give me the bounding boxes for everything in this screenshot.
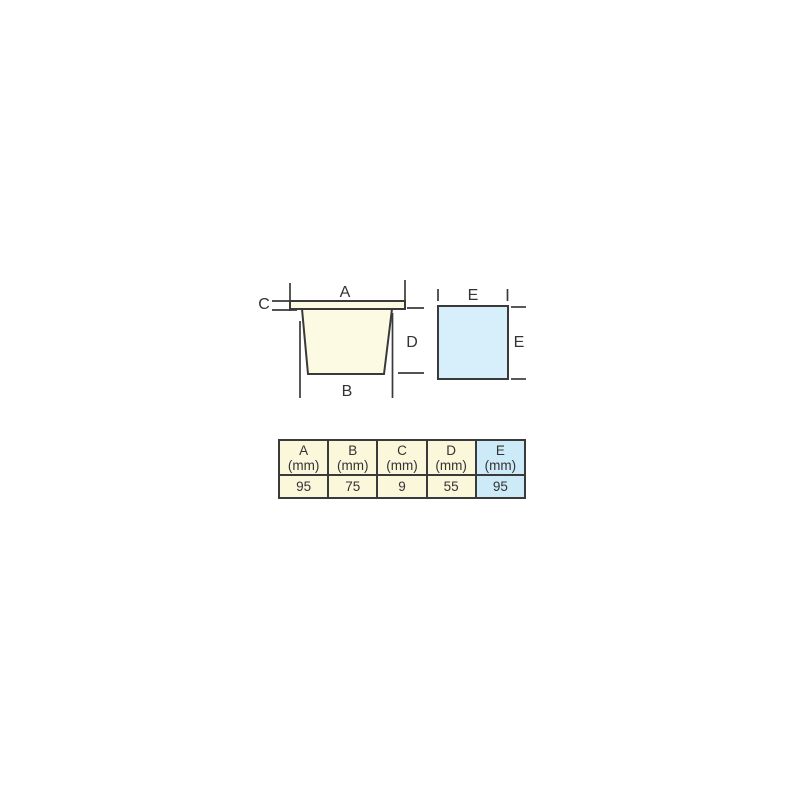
value-c: 9 xyxy=(377,475,426,498)
square-top-view: E E xyxy=(438,287,526,379)
col-header-d: D (mm) xyxy=(427,440,476,475)
col-header-e-name: E xyxy=(477,443,524,458)
value-d: 55 xyxy=(427,475,476,498)
col-header-a: A (mm) xyxy=(279,440,328,475)
col-header-a-unit: (mm) xyxy=(280,458,327,473)
dimension-drawing: A C D B E E xyxy=(0,0,800,800)
dim-label-a: A xyxy=(340,284,351,301)
dim-label-c: C xyxy=(258,296,270,313)
dim-label-d: D xyxy=(406,334,418,351)
col-header-d-name: D xyxy=(428,443,475,458)
dimension-table-body: 95 75 9 55 95 xyxy=(279,475,525,498)
dim-label-e-top: E xyxy=(468,287,479,304)
value-b: 75 xyxy=(328,475,377,498)
dim-label-e-side: E xyxy=(514,334,525,351)
col-header-e-unit: (mm) xyxy=(477,458,524,473)
table-value-row: 95 75 9 55 95 xyxy=(279,475,525,498)
col-header-c-name: C xyxy=(378,443,425,458)
pot-flange-shape xyxy=(290,301,405,309)
dim-label-b: B xyxy=(342,383,353,400)
pot-body-shape xyxy=(302,309,392,374)
square-shape xyxy=(438,306,508,379)
dimension-table-header: A (mm) B (mm) C (mm) D (mm) E (mm) xyxy=(279,440,525,475)
col-header-d-unit: (mm) xyxy=(428,458,475,473)
col-header-b-name: B xyxy=(329,443,376,458)
col-header-c-unit: (mm) xyxy=(378,458,425,473)
table-header-row: A (mm) B (mm) C (mm) D (mm) E (mm) xyxy=(279,440,525,475)
col-header-b: B (mm) xyxy=(328,440,377,475)
diagram-canvas: A C D B E E A (mm) xyxy=(0,0,800,800)
value-e: 95 xyxy=(476,475,525,498)
col-header-c: C (mm) xyxy=(377,440,426,475)
col-header-a-name: A xyxy=(280,443,327,458)
value-a: 95 xyxy=(279,475,328,498)
dimension-table: A (mm) B (mm) C (mm) D (mm) E (mm) xyxy=(278,439,526,499)
col-header-b-unit: (mm) xyxy=(329,458,376,473)
pot-cross-section: A C D B xyxy=(258,280,424,400)
col-header-e: E (mm) xyxy=(476,440,525,475)
